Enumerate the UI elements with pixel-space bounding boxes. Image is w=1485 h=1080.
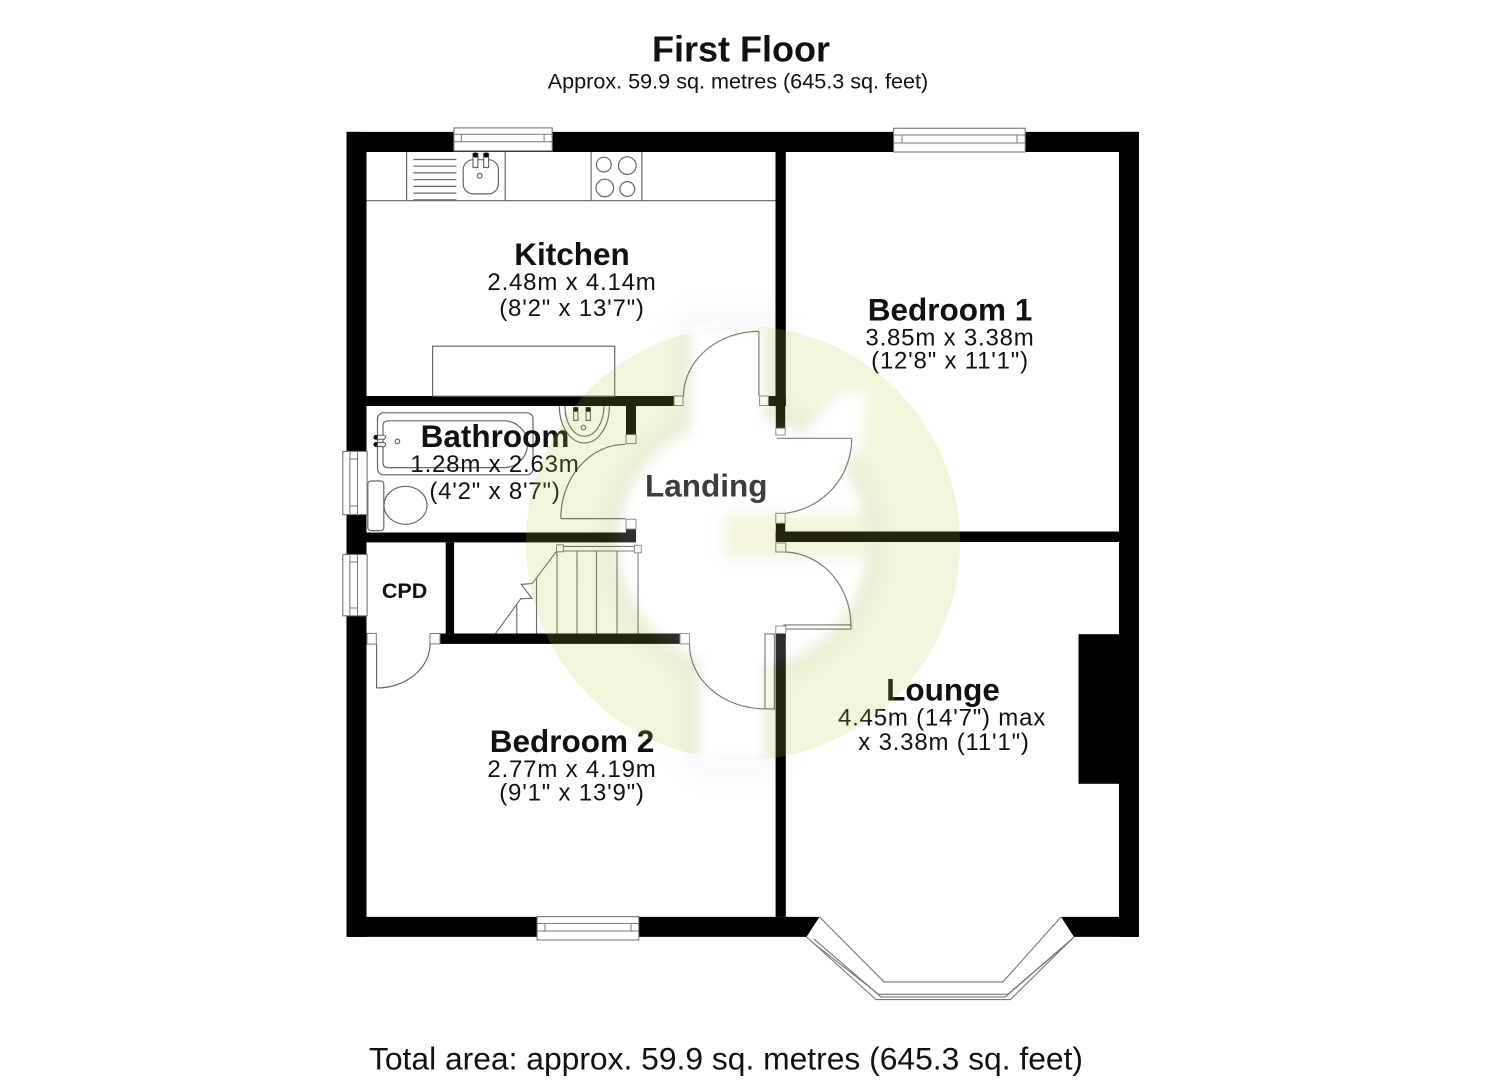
svg-text:Bedroom 2: Bedroom 2 — [490, 723, 655, 759]
svg-text:Bathroom: Bathroom — [421, 418, 570, 454]
svg-text:(9'1" x 13'9"): (9'1" x 13'9") — [499, 780, 644, 807]
svg-text:(8'2" x 13'7"): (8'2" x 13'7") — [499, 295, 644, 322]
svg-text:Total area: approx. 59.9 sq. m: Total area: approx. 59.9 sq. metres (645… — [369, 1041, 1083, 1077]
svg-text:Bedroom 1: Bedroom 1 — [868, 292, 1033, 328]
svg-text:Kitchen: Kitchen — [514, 236, 630, 272]
svg-text:First Floor: First Floor — [652, 28, 830, 69]
svg-text:2.48m x 4.14m: 2.48m x 4.14m — [487, 269, 656, 296]
svg-text:Approx. 59.9 sq. metres (645.3: Approx. 59.9 sq. metres (645.3 sq. feet) — [548, 69, 929, 94]
svg-text:(12'8" x 11'1"): (12'8" x 11'1") — [871, 348, 1029, 375]
svg-text:x 3.38m (11'1"): x 3.38m (11'1") — [858, 729, 1029, 756]
svg-text:CPD: CPD — [382, 579, 427, 603]
